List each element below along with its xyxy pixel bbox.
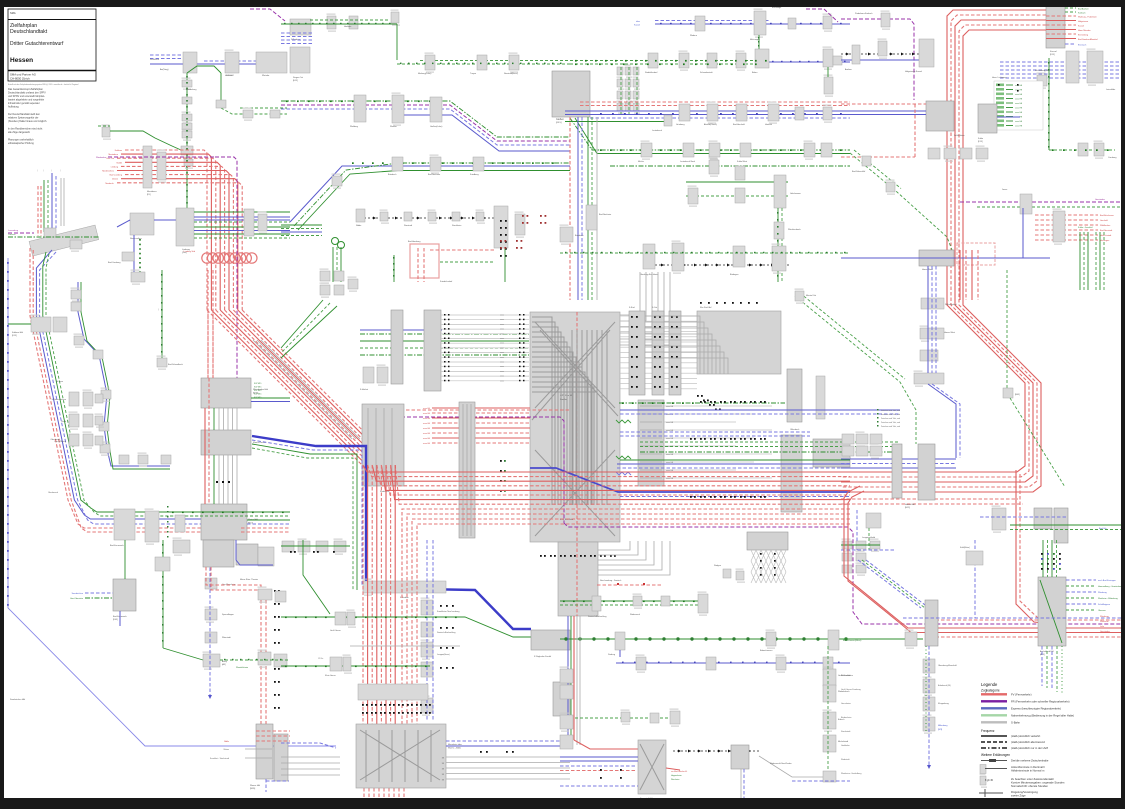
svg-text:S8: S8	[442, 758, 444, 760]
svg-text:[K15]: [K15]	[1050, 54, 1055, 56]
svg-text:Wertheim - Miltenberg: Wertheim - Miltenberg	[1098, 597, 1118, 600]
svg-text:xx:xx: xx:xx	[500, 380, 504, 382]
svg-text:Dreieich-Buchschlag: Dreieich-Buchschlag	[588, 616, 606, 618]
svg-text:Weinheim: Weinheim	[671, 779, 680, 781]
svg-text:Klingenberg: Klingenberg	[938, 703, 949, 705]
svg-text:Rodgau: Rodgau	[714, 565, 721, 567]
svg-text:Weitere Erklärungen: Weitere Erklärungen	[981, 753, 1010, 757]
svg-text:Abfahrtsminute in Normal m: Abfahrtsminute in Normal m	[1011, 769, 1045, 773]
svg-text:Deutschlandtakt: Deutschlandtakt	[10, 29, 48, 35]
svg-text:Rödermark-Ober-Roden: Rödermark-Ober-Roden	[770, 763, 792, 765]
svg-text:xx:xx: xx:xx	[500, 371, 504, 373]
svg-text:F Flughafen Fernbf: F Flughafen Fernbf	[534, 656, 551, 658]
svg-text:Heppenheim: Heppenheim	[671, 775, 682, 777]
svg-text:xx:xx: xx:xx	[500, 352, 504, 354]
svg-text:Koblenz Hbf: Koblenz Hbf	[12, 332, 23, 334]
svg-text:F-Höchst: F-Höchst	[360, 388, 369, 391]
svg-text:Zugkategorie: Zugkategorie	[981, 689, 1000, 693]
svg-text:F-Süd: F-Süd	[629, 307, 634, 309]
svg-text:Bad Nauheim: Bad Nauheim	[428, 174, 440, 176]
svg-text:Frequenz: Frequenz	[981, 729, 995, 733]
svg-text:Rödermark: Rödermark	[630, 614, 640, 616]
svg-text:xx:xx HE: xx:xx HE	[666, 438, 674, 440]
svg-text:F-Ost: F-Ost	[652, 306, 657, 309]
svg-text:xx:xx: xx:xx	[500, 329, 504, 331]
svg-text:xx:xx: xx:xx	[500, 357, 504, 359]
svg-text:Warburg - Paderborn: Warburg - Paderborn	[1078, 17, 1097, 19]
svg-text:Idar-Oberstein: Idar-Oberstein	[70, 597, 83, 600]
svg-text:Dieburg: Dieburg	[608, 654, 615, 656]
svg-text:Zu beachten unter Zweistundent: Zu beachten unter Zweistundentakt/	[1011, 777, 1054, 781]
svg-text:[K05]: [K05]	[113, 619, 118, 621]
svg-text:xx:xx: xx:xx	[500, 315, 504, 317]
svg-text:Gemünden: Gemünden	[1095, 199, 1105, 201]
svg-text:S02 W15: S02 W15	[254, 397, 261, 399]
svg-text:S-Bahn: S-Bahn	[1011, 721, 1020, 725]
svg-text:xx:xx HE: xx:xx HE	[1015, 103, 1023, 105]
svg-text:Saarbrücken: Saarbrücken	[72, 593, 83, 595]
svg-text:Erlenbach (M): Erlenbach (M)	[938, 685, 951, 687]
svg-text:Bad Sooden-Allendorf: Bad Sooden-Allendorf	[1078, 38, 1098, 41]
svg-text:S02 W15: S02 W15	[254, 387, 261, 389]
svg-text:(Halb-)stündlich verkehrt: (Halb-)stündlich verkehrt	[1011, 734, 1041, 738]
svg-text:Express (beschleunigter Region: Express (beschleunigter Regionalverkehr)	[1011, 707, 1061, 711]
svg-text:Herborn: Herborn	[225, 74, 234, 77]
svg-text:Gelnhausen: Gelnhausen	[790, 193, 801, 195]
svg-text:Wabern: Wabern	[690, 35, 697, 37]
svg-text:Babenhausen(Hess): Babenhausen(Hess)	[843, 640, 862, 642]
svg-text:Hanau West: Hanau West	[944, 331, 955, 334]
svg-text:xx:xx HE: xx:xx HE	[1015, 126, 1023, 128]
svg-text:Dritter Gutachterentwurf: Dritter Gutachterentwurf	[10, 41, 64, 47]
svg-text:[F15]: [F15]	[978, 141, 983, 143]
svg-text:Eichenberg: Eichenberg	[1078, 35, 1088, 37]
svg-text:Butzbach: Butzbach	[388, 173, 396, 176]
svg-text:Wildflecken: Wildflecken	[1100, 225, 1110, 227]
svg-text:Weinheim - Heidelberg: Weinheim - Heidelberg	[841, 773, 861, 775]
svg-text:xx:xx HE: xx:xx HE	[1015, 121, 1023, 123]
svg-text:Langen(Hess): Langen(Hess)	[437, 654, 450, 656]
svg-text:Bad Brückenau: Bad Brückenau	[1100, 215, 1114, 217]
svg-text:Hofgeismar: Hofgeismar	[1078, 21, 1089, 23]
svg-text:Erstellt mit dem Fahrplanbearb: Erstellt mit dem Fahrplanbearbeitungssys…	[8, 83, 79, 86]
svg-text:Butzbach: Butzbach	[575, 234, 583, 237]
svg-text:Dreieich-Buchschlag: Dreieich-Buchschlag	[437, 632, 455, 634]
svg-text:Bad Neustadt: Bad Neustadt	[1100, 229, 1113, 232]
svg-text:Fulda: Fulda	[978, 138, 984, 140]
svg-text:Bebra: Bebra	[752, 72, 758, 74]
svg-text:Babenhausen: Babenhausen	[760, 650, 772, 652]
svg-text:Zwischen und Takt, und: Zwischen und Takt, und	[881, 417, 900, 420]
svg-text:[H15]: [H15]	[905, 507, 910, 509]
svg-text:Wiebelsbach: Wiebelsbach	[838, 691, 849, 693]
svg-text:xx:xx HE: xx:xx HE	[423, 443, 431, 445]
svg-text:Ankunftsminute in Dezimal h: Ankunftsminute in Dezimal h	[1011, 765, 1046, 769]
svg-text:xx:xx: xx:xx	[500, 333, 504, 335]
svg-text:xx:xx HE: xx:xx HE	[423, 433, 431, 435]
svg-text:Zwischen und Takt, und: Zwischen und Takt, und	[881, 409, 900, 412]
svg-text:[G15]: [G15]	[556, 122, 562, 124]
svg-text:Mellrichstadt: Mellrichstadt	[1100, 234, 1112, 237]
svg-text:Kassel: Kassel	[1078, 26, 1085, 28]
svg-text:Fulda - Gersfeld: Fulda - Gersfeld	[1078, 227, 1092, 229]
svg-text:Klein Gerau: Klein Gerau	[325, 675, 336, 677]
svg-text:xx:xx HE: xx:xx HE	[423, 428, 431, 430]
svg-text:Wertheim: Wertheim	[1100, 620, 1109, 623]
svg-text:Limburg: Limburg	[111, 166, 118, 168]
svg-text:Gemünden: Gemünden	[1100, 631, 1110, 633]
svg-text:Wetzlar: Wetzlar	[262, 74, 270, 77]
svg-text:Bad Camberg: Bad Camberg	[108, 262, 120, 264]
svg-text:Hünfeld: Hünfeld	[765, 124, 772, 126]
svg-text:Friedberg: Friedberg	[470, 174, 479, 176]
svg-text:Miltenberg: Miltenberg	[938, 724, 947, 727]
svg-text:Bad Schwalbach: Bad Schwalbach	[168, 364, 183, 366]
svg-text:S02 W15: S02 W15	[254, 394, 261, 396]
svg-text:Lorch(Rhein): Lorch(Rhein)	[54, 441, 66, 443]
svg-text:Korbach: Korbach	[1078, 13, 1085, 15]
svg-text:[K15]: [K15]	[12, 335, 17, 337]
svg-text:Hanau Hbf: Hanau Hbf	[905, 504, 915, 506]
svg-text:Offenbach: Offenbach	[790, 429, 799, 431]
svg-text:Friedrichsdorf: Friedrichsdorf	[440, 281, 453, 283]
svg-text:[Jxx]: [Jxx]	[182, 252, 187, 254]
svg-text:Sprendlingen: Sprendlingen	[222, 614, 234, 616]
svg-text:Niederselters: Niederselters	[102, 170, 114, 173]
svg-text:Herborn: Herborn	[344, 26, 351, 28]
svg-text:S8: S8	[442, 780, 444, 782]
svg-text:St Goarshausen: St Goarshausen	[52, 398, 66, 401]
svg-text:Michelstadt: Michelstadt	[838, 740, 849, 743]
svg-text:Flügelung/Vereinigung: Flügelung/Vereinigung	[1011, 790, 1038, 794]
svg-text:Biblis: Biblis	[224, 741, 229, 743]
svg-text:Bad Nauheim: Bad Nauheim	[599, 214, 611, 216]
svg-text:xx:xx HE: xx:xx HE	[1015, 108, 1023, 110]
svg-text:Diez Ost: Diez Ost	[106, 157, 114, 160]
svg-text:Siershahn: Siershahn	[150, 59, 159, 61]
svg-text:xx:xx HE: xx:xx HE	[1015, 94, 1023, 96]
svg-text:Neu-Isenburg - Dreieich: Neu-Isenburg - Dreieich	[600, 580, 621, 582]
svg-text:Hann Münden: Hann Münden	[1078, 30, 1091, 32]
svg-text:Fulda West: Fulda West	[737, 160, 748, 163]
svg-text:Eisenach: Eisenach	[1078, 45, 1086, 47]
svg-text:xx:xx HE: xx:xx HE	[666, 422, 674, 424]
svg-text:xx:xx HE: xx:xx HE	[423, 423, 431, 425]
svg-text:Wilhelmsbad: Wilhelmsbad	[945, 304, 956, 306]
svg-text:Auflistung.: Auflistung.	[8, 106, 19, 109]
svg-text:Wächtersbach: Wächtersbach	[788, 228, 801, 231]
svg-text:eribsskapischer Prüfung: eribsskapischer Prüfung	[8, 142, 34, 145]
svg-text:Normalschrift: oberste Stunden: Normalschrift: oberste Stunden	[1011, 784, 1049, 788]
svg-text:Eichenberg [KE]: Eichenberg [KE]	[1035, 70, 1050, 72]
svg-text:Luxemburg: Luxemburg	[8, 230, 18, 232]
svg-text:xx:xx: xx:xx	[500, 376, 504, 378]
svg-text:xx:xx HE: xx:xx HE	[666, 478, 674, 480]
svg-text:Hessen: Hessen	[10, 57, 33, 64]
svg-text:Mainz: Mainz	[224, 749, 229, 751]
svg-text:Eschwege: Eschwege	[772, 7, 782, 9]
svg-text:Kursive Minutenangaben: ungera: Kursive Minutenangaben: ungerade Stunden	[1011, 781, 1065, 785]
svg-text:Neustadt(Hess): Neustadt(Hess)	[504, 72, 518, 75]
svg-text:xx:xx HE: xx:xx HE	[666, 454, 674, 456]
svg-text:[F5]: [F5]	[147, 194, 151, 196]
svg-text:Paderborn-Korbach: Paderborn-Korbach	[855, 13, 872, 15]
svg-text:[A5]: [A5]	[222, 663, 226, 666]
svg-text:Obernau: Obernau	[1098, 610, 1106, 612]
svg-text:Leinefelde: Leinefelde	[1106, 89, 1116, 91]
svg-text:xx:xx: xx:xx	[500, 324, 504, 326]
svg-text:Kassel: Kassel	[634, 25, 641, 27]
svg-text:Zwischen und Takt, und: Zwischen und Takt, und	[881, 421, 900, 424]
svg-text:Legende: Legende	[981, 682, 998, 687]
svg-text:Mainz Röm. Theater: Mainz Röm. Theater	[240, 578, 258, 581]
svg-text:xx:xx HE: xx:xx HE	[423, 438, 431, 440]
svg-text:Gersfeld: Gersfeld	[1100, 220, 1108, 222]
svg-text:Obernburg-Elsenfeld: Obernburg-Elsenfeld	[938, 665, 956, 667]
svg-text:Gießen(Lahn): Gießen(Lahn)	[430, 126, 443, 128]
svg-text:Bacharach: Bacharach	[48, 492, 58, 494]
svg-text:Würzburg: Würzburg	[1098, 592, 1107, 594]
svg-text:Jossa: Jossa	[1002, 189, 1008, 191]
svg-text:xx:xx HE: xx:xx HE	[666, 406, 674, 408]
svg-text:(Stunden-)Takte hinaus und mög: (Stunden-)Takte hinaus und möglich.	[8, 120, 47, 123]
svg-text:[A15]: [A15]	[1040, 653, 1045, 656]
svg-text:xx:xx: xx:xx	[500, 343, 504, 345]
svg-text:8 gh 30: 8 gh 30	[985, 779, 994, 782]
svg-text:[E15]: [E15]	[293, 80, 298, 82]
svg-text:Schöllkrippen: Schöllkrippen	[1098, 604, 1110, 606]
svg-text:nach Bad Kissingen: nach Bad Kissingen	[1098, 580, 1116, 582]
svg-text:Nidda: Nidda	[356, 225, 362, 227]
svg-text:über: über	[636, 21, 640, 23]
svg-text:Alsfeld(Oberh): Alsfeld(Oberh)	[704, 123, 717, 126]
svg-text:xx:xx: xx:xx	[500, 366, 504, 368]
svg-text:(Halb-)stündlich alternierend: (Halb-)stündlich alternierend	[1011, 740, 1045, 744]
svg-text:Glauburg-Stockheim: Glauburg-Stockheim	[640, 273, 659, 276]
svg-text:Worms Hbf: Worms Hbf	[250, 785, 260, 787]
svg-text:Bad Arolsen: Bad Arolsen	[1078, 8, 1089, 11]
svg-text:Erbach: Erbach	[838, 719, 844, 721]
svg-text:Bischofsheim: Bischofsheim	[841, 675, 853, 677]
svg-text:S02 W15: S02 W15	[254, 383, 261, 385]
svg-text:xx:xx: xx:xx	[500, 347, 504, 349]
svg-text:Lohr: Lohr	[1100, 626, 1104, 628]
svg-text:Ranstadt: Ranstadt	[404, 224, 412, 227]
svg-text:Au(Sieg): Au(Sieg)	[160, 68, 169, 71]
svg-text:Niedernh.: Niedernh.	[105, 183, 114, 185]
svg-text:Treysa: Treysa	[470, 73, 477, 75]
svg-text:Wiesbaden: Wiesbaden	[96, 157, 106, 159]
svg-text:zur Main-Neckar-B.: zur Main-Neckar-B.	[671, 770, 688, 773]
svg-text:Saarbrücken Hbf: Saarbrücken Hbf	[10, 699, 25, 701]
svg-text:Siegen Ost: Siegen Ost	[293, 76, 303, 79]
svg-text:Hofgeismar-Kassel: Hofgeismar-Kassel	[905, 71, 922, 73]
svg-text:Bad Orb: Bad Orb	[1099, 528, 1107, 530]
svg-text:Maintal Ost: Maintal Ost	[806, 294, 817, 297]
svg-text:Cornberg: Cornberg	[1108, 157, 1116, 159]
svg-text:Grünberg: Grünberg	[676, 124, 684, 126]
svg-text:Montabaur: Montabaur	[147, 190, 157, 193]
svg-text:Hammelburg - Gemünden: Hammelburg - Gemünden	[1098, 586, 1121, 588]
svg-text:Zwischen und Takt, und: Zwischen und Takt, und	[881, 413, 900, 416]
svg-text:Melsungen: Melsungen	[750, 39, 760, 41]
svg-text:Limburg: Limburg	[182, 248, 191, 251]
svg-text:Hess. Lichtenau: Hess. Lichtenau	[992, 76, 1006, 79]
svg-text:S8: S8	[442, 774, 444, 776]
svg-text:Arolsen: Arolsen	[845, 68, 852, 71]
svg-text:Gernsheim: Gernsheim	[841, 703, 851, 705]
svg-text:Wendelsheim: Wendelsheim	[236, 667, 248, 669]
svg-text:Groß Gerau-Dornberg: Groß Gerau-Dornberg	[841, 689, 861, 691]
svg-text:Hanau Nord: Hanau Nord	[922, 269, 933, 271]
svg-text:zweier Züge: zweier Züge	[1011, 794, 1026, 798]
svg-text:Lauterbach: Lauterbach	[652, 129, 662, 132]
svg-text:Nahverkehrszug (Bedienung in d: Nahverkehrszug (Bedienung in der Regel a…	[1011, 714, 1074, 718]
svg-text:Ffm Süd Gbf: Ffm Süd Gbf	[700, 307, 712, 309]
svg-text:xx:xx: xx:xx	[500, 362, 504, 364]
svg-text:[W3]: [W3]	[938, 729, 943, 731]
svg-text:Idstein: Idstein	[112, 178, 118, 181]
svg-text:alle Züge dargestellt.: alle Züge dargestellt.	[8, 131, 31, 134]
svg-text:St Goar: St Goar	[56, 380, 63, 383]
svg-text:Bad Hersfeld: Bad Hersfeld	[733, 124, 745, 126]
svg-text:Zwischen und Takt, und: Zwischen und Takt, und	[881, 425, 900, 428]
svg-text:xx:xx: xx:xx	[500, 338, 504, 340]
svg-text:Wörrstadt: Wörrstadt	[222, 636, 231, 639]
svg-text:Stockheim: Stockheim	[452, 224, 462, 227]
svg-text:12 Uhr: 12 Uhr	[318, 658, 324, 660]
svg-text:Stockstadt: Stockstadt	[841, 730, 851, 733]
svg-text:Der/die mehrere Zwischenhalte: Der/die mehrere Zwischenhalte	[1011, 759, 1049, 763]
svg-text:Bad Kreuznach: Bad Kreuznach	[110, 545, 124, 547]
svg-text:xx:xx: xx:xx	[500, 319, 504, 321]
svg-text:Bad Homburg: Bad Homburg	[408, 241, 420, 243]
svg-text:Marburg(Lahn): Marburg(Lahn)	[418, 73, 432, 75]
svg-text:Groß Gerau: Groß Gerau	[330, 630, 341, 632]
svg-text:[W05]: [W05]	[250, 788, 256, 790]
svg-text:Gießen: Gießen	[556, 118, 565, 121]
svg-text:xx:xx HE: xx:xx HE	[1015, 90, 1023, 92]
svg-text:Schlüchtern: Schlüchtern	[954, 134, 965, 137]
svg-text:Riedstadt: Riedstadt	[841, 758, 850, 761]
svg-text:Cochem: Cochem	[8, 234, 16, 236]
svg-text:xx:xx HE: xx:xx HE	[1015, 99, 1023, 101]
svg-text:SMA: SMA	[10, 11, 16, 15]
svg-text:Koblenz: Koblenz	[115, 150, 122, 152]
svg-text:Worms - Biblis: Worms - Biblis	[448, 748, 461, 750]
svg-text:Stadtallendorf: Stadtallendorf	[645, 71, 658, 74]
svg-text:Westerburg: Westerburg	[186, 88, 196, 91]
svg-text:Meiningen: Meiningen	[1100, 240, 1109, 242]
svg-text:Staffel: Staffel	[116, 161, 122, 164]
svg-text:xx:xx HE: xx:xx HE	[1015, 112, 1023, 114]
svg-text:Mücke: Mücke	[638, 161, 645, 163]
svg-text:xx:xx HE: xx:xx HE	[423, 418, 431, 420]
svg-text:Bad Camberg: Bad Camberg	[110, 175, 122, 177]
svg-text:Montabaur: Montabaur	[108, 153, 118, 156]
svg-text:[B05]: [B05]	[1015, 394, 1020, 396]
svg-text:Bad Salzschlirf: Bad Salzschlirf	[852, 171, 866, 173]
svg-text:S8: S8	[442, 763, 444, 765]
svg-text:Büdingen: Büdingen	[730, 274, 738, 276]
svg-text:S8: S8	[442, 769, 444, 771]
svg-text:Kahl(Main): Kahl(Main)	[960, 547, 970, 549]
svg-text:FR (Fernverkehr oder schneller: FR (Fernverkehr oder schneller Regionalv…	[1011, 700, 1070, 704]
svg-text:xx:xx HE: xx:xx HE	[1015, 85, 1023, 87]
svg-text:Biebesheim: Biebesheim	[841, 717, 852, 719]
svg-text:Kassel: Kassel	[1050, 51, 1057, 53]
svg-text:S02 W15: S02 W15	[254, 390, 261, 392]
svg-text:Lauterbach Nord: Lauterbach Nord	[680, 160, 695, 163]
svg-text:Weilburg: Weilburg	[350, 126, 358, 128]
svg-text:Wetzlar: Wetzlar	[390, 125, 397, 128]
svg-text:CH-8050 Zürich: CH-8050 Zürich	[10, 77, 30, 81]
svg-text:Frankfurt - Stockstadt: Frankfurt - Stockstadt	[210, 757, 230, 760]
svg-text:xx:xx HE: xx:xx HE	[423, 413, 431, 415]
svg-text:Schwalmstadt: Schwalmstadt	[700, 71, 713, 74]
svg-text:FV (Fernverkehr): FV (Fernverkehr)	[1011, 693, 1032, 697]
svg-text:Frankfurter Neu Isenburg: Frankfurter Neu Isenburg	[437, 610, 459, 613]
svg-text:(Halb-)stündlich nur in der HV: (Halb-)stündlich nur in der HVZ	[1011, 746, 1048, 750]
svg-text:Goddelau: Goddelau	[841, 745, 850, 747]
